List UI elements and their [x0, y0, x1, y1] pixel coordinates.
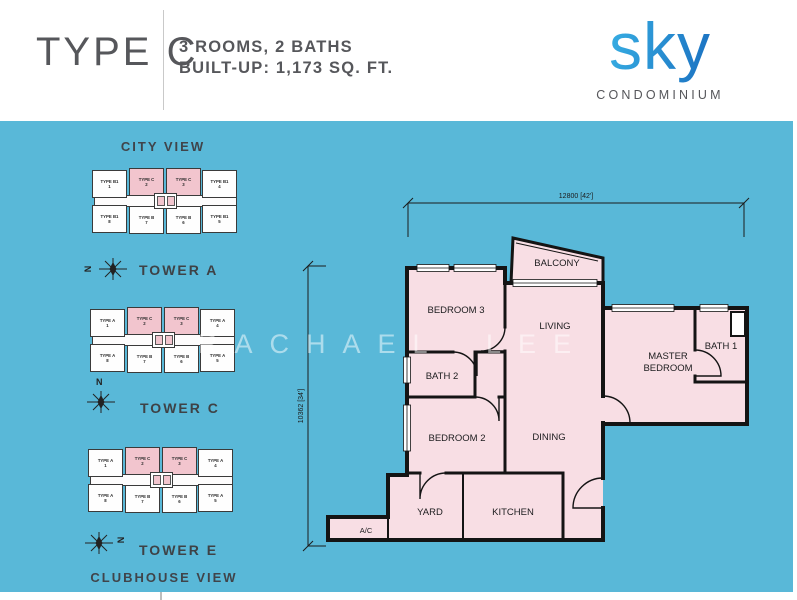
plan-canvas: CITY VIEW TYPE B11 TYPE C2 TYPE C3 TYPE …: [0, 121, 793, 592]
unit-specs: 3 ROOMS, 2 BATHS BUILT-UP: 1,173 SQ. FT.: [179, 37, 393, 79]
specs-builtup-line: BUILT-UP: 1,173 SQ. FT.: [179, 58, 393, 79]
keyplan-unit: TYPE B6: [166, 206, 201, 234]
keyplan-unit: TYPE B6: [162, 485, 197, 513]
keyplan-unit-highlighted: TYPE C2: [127, 307, 162, 335]
tower-a-label: TOWER A: [139, 262, 218, 278]
keyplan-unit: TYPE A5: [198, 484, 233, 512]
keyplan-unit: TYPE A8: [88, 484, 123, 512]
unit-type-title: TYPE C: [36, 30, 198, 75]
room-label-dining: DINING: [532, 432, 565, 443]
room-label-master-line2: BEDROOM: [643, 363, 692, 374]
dimension-height-label: 10362 [34']: [298, 389, 305, 423]
north-letter: N: [115, 537, 125, 544]
keyplan-unit: TYPE B7: [125, 485, 160, 513]
compass-icon: [84, 528, 114, 558]
logo-subtitle: CONDOMINIUM: [593, 88, 727, 102]
room-label-master-line1: MASTER: [648, 351, 688, 362]
header-divider: [163, 10, 164, 110]
tower-e-keyplan: TYPE A1 TYPE C2 TYPE C3 TYPE A4 TYPE A8 …: [88, 447, 233, 512]
room-label-balcony: BALCONY: [534, 258, 580, 269]
keyplan-core: [154, 193, 177, 209]
keyplan-unit-highlighted: TYPE C3: [164, 307, 199, 335]
keyplan-unit: TYPE B11: [92, 170, 127, 198]
keyplan-unit: TYPE B14: [202, 170, 237, 198]
city-view-label: CITY VIEW: [83, 139, 243, 154]
keyplan-unit: TYPE A1: [88, 449, 123, 477]
keyplan-unit-highlighted: TYPE C2: [125, 447, 160, 475]
room-label-bedroom2: BEDROOM 2: [428, 433, 485, 444]
compass-icon: [98, 254, 128, 284]
keyplan-unit-highlighted: TYPE C2: [129, 168, 164, 196]
keyplan-core: [150, 472, 173, 488]
tower-a-keyplan: TYPE B11 TYPE C2 TYPE C3 TYPE B14 TYPE B…: [92, 168, 237, 233]
tower-c-keyplan: TYPE A1 TYPE C2 TYPE C3 TYPE A4 TYPE A8 …: [90, 307, 235, 372]
logo-wordmark: sky: [593, 6, 727, 86]
room-label-bedroom3: BEDROOM 3: [427, 305, 484, 316]
header: TYPE C 3 ROOMS, 2 BATHS BUILT-UP: 1,173 …: [0, 0, 797, 121]
keyplan-unit: TYPE B7: [127, 345, 162, 373]
specs-rooms-line: 3 ROOMS, 2 BATHS: [179, 37, 393, 58]
keyplan-unit: TYPE A4: [198, 449, 233, 477]
keyplan-unit-highlighted: TYPE C3: [162, 447, 197, 475]
north-letter: N: [96, 377, 103, 387]
keyplan-unit: TYPE B6: [164, 345, 199, 373]
keyplan-core: [152, 332, 175, 348]
floorplan-brochure-page: TYPE C 3 ROOMS, 2 BATHS BUILT-UP: 1,173 …: [0, 0, 797, 600]
compass-icon: [86, 387, 116, 417]
dimension-width-label: 12800 [42']: [559, 193, 593, 200]
north-letter: N: [82, 266, 92, 273]
clubhouse-view-label: CLUBHOUSE VIEW: [74, 570, 254, 585]
tower-e-label: TOWER E: [139, 542, 218, 558]
keyplan-unit: TYPE A5: [200, 344, 235, 372]
keyplan-unit: TYPE B15: [202, 205, 237, 233]
keyplan-unit: TYPE B7: [129, 206, 164, 234]
tower-c-label: TOWER C: [140, 400, 220, 416]
room-label-bath2: BATH 2: [426, 371, 459, 382]
room-label-living: LIVING: [539, 321, 570, 332]
keyplan-unit: TYPE B18: [92, 205, 127, 233]
keyplan-unit: TYPE A4: [200, 309, 235, 337]
brand-logo: sky CONDOMINIUM: [593, 6, 727, 102]
keyplan-unit: TYPE A1: [90, 309, 125, 337]
floorplan-svg: 12800 [42'] 10362 [34']: [290, 180, 760, 570]
room-label-ac: A/C: [360, 526, 373, 535]
keyplan-unit-highlighted: TYPE C3: [166, 168, 201, 196]
keyplan-unit: TYPE A8: [90, 344, 125, 372]
room-label-bath1: BATH 1: [705, 341, 738, 352]
room-label-yard: YARD: [417, 507, 443, 518]
room-label-kitchen: KITCHEN: [492, 507, 534, 518]
bottom-divider-tick: [160, 592, 162, 600]
